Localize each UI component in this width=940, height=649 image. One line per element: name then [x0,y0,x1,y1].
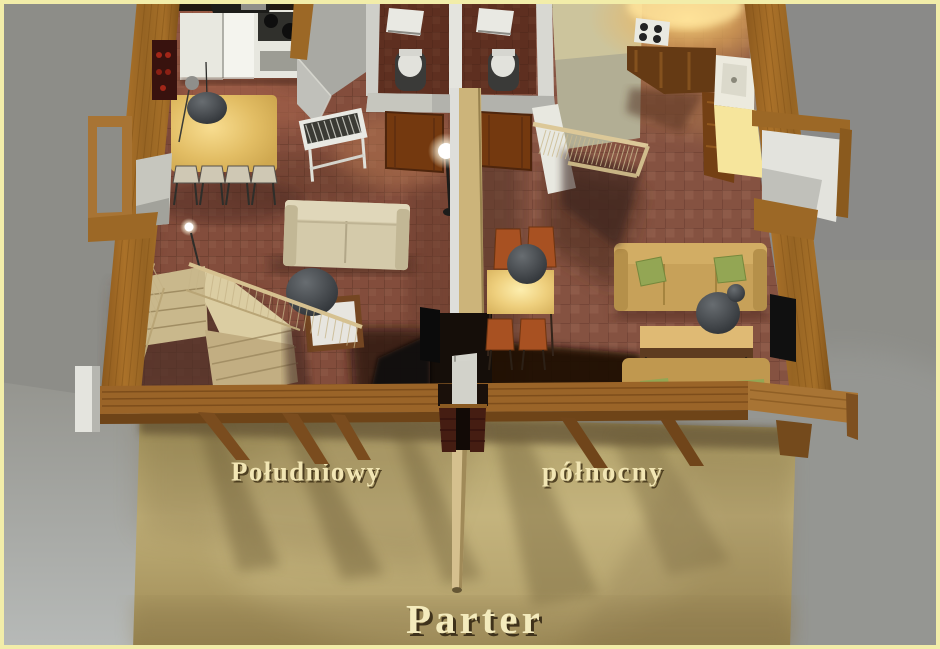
svg-text:Południowy: Południowy [231,457,382,487]
svg-text:Parter: Parter [406,596,544,642]
